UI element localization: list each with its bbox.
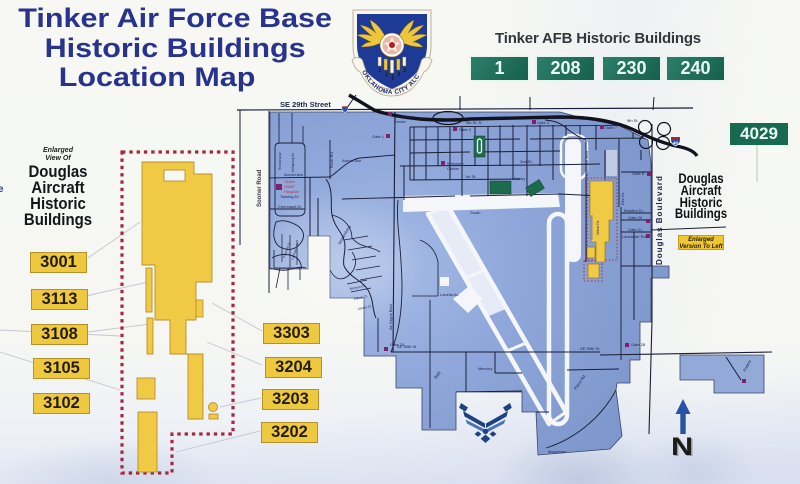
svg-text:Gate 21: Gate 21 — [628, 227, 643, 232]
svg-text:Gate 8: Gate 8 — [632, 171, 645, 176]
svg-text:e: e — [0, 184, 4, 195]
svg-text:SE 59th St.: SE 59th St. — [580, 346, 600, 351]
svg-text:2nd St.: 2nd St. — [520, 159, 533, 164]
svg-text:Arnold Ave: Arnold Ave — [342, 158, 362, 163]
svg-text:Center: Center — [447, 166, 460, 171]
svg-text:Industrial Blvd: Industrial Blvd — [584, 151, 589, 176]
svg-text:Lanella Av: Lanella Av — [440, 292, 458, 297]
svg-text:Hruskocy Av: Hruskocy Av — [278, 152, 282, 170]
svg-text:Gate 1: Gate 1 — [372, 134, 385, 139]
svg-text:40: 40 — [673, 141, 679, 146]
svg-text:Chennault Dr: Chennault Dr — [278, 204, 302, 209]
svg-text:Twining Dr: Twining Dr — [280, 194, 300, 199]
svg-text:Gate 3: Gate 3 — [537, 120, 550, 125]
svg-text:Elm Dr.: Elm Dr. — [620, 192, 625, 205]
svg-text:Sentry: Sentry — [514, 176, 526, 181]
svg-text:1st St.: 1st St. — [465, 174, 476, 179]
svg-text:9th St.: 9th St. — [627, 118, 639, 123]
svg-text:South: South — [470, 210, 480, 215]
svg-text:Air Depot Blvd: Air Depot Blvd — [388, 304, 393, 330]
svg-text:Magicians: Magicians — [548, 449, 566, 454]
svg-text:Perimeter: Perimeter — [550, 116, 567, 120]
svg-text:Hospital: Hospital — [284, 189, 299, 194]
svg-text:West Dr.: West Dr. — [595, 220, 600, 235]
svg-text:Gate 7: Gate 7 — [605, 125, 618, 130]
svg-text:Gate 2: Gate 2 — [459, 127, 472, 132]
svg-text:Lancaster Rd.: Lancaster Rd. — [622, 234, 647, 239]
svg-text:9th St. N: 9th St. N — [466, 120, 482, 125]
svg-text:Gate 20: Gate 20 — [628, 215, 643, 220]
svg-text:McNarney Av: McNarney Av — [291, 153, 295, 172]
svg-text:Rook Rd.: Rook Rd. — [329, 151, 334, 168]
svg-text:Center: Center — [394, 119, 407, 124]
svg-text:Gate 24: Gate 24 — [390, 342, 405, 347]
svg-text:Bradley Dr.: Bradley Dr. — [624, 208, 644, 213]
svg-text:Gate 28: Gate 28 — [631, 342, 646, 347]
svg-text:Mercury: Mercury — [478, 366, 492, 371]
